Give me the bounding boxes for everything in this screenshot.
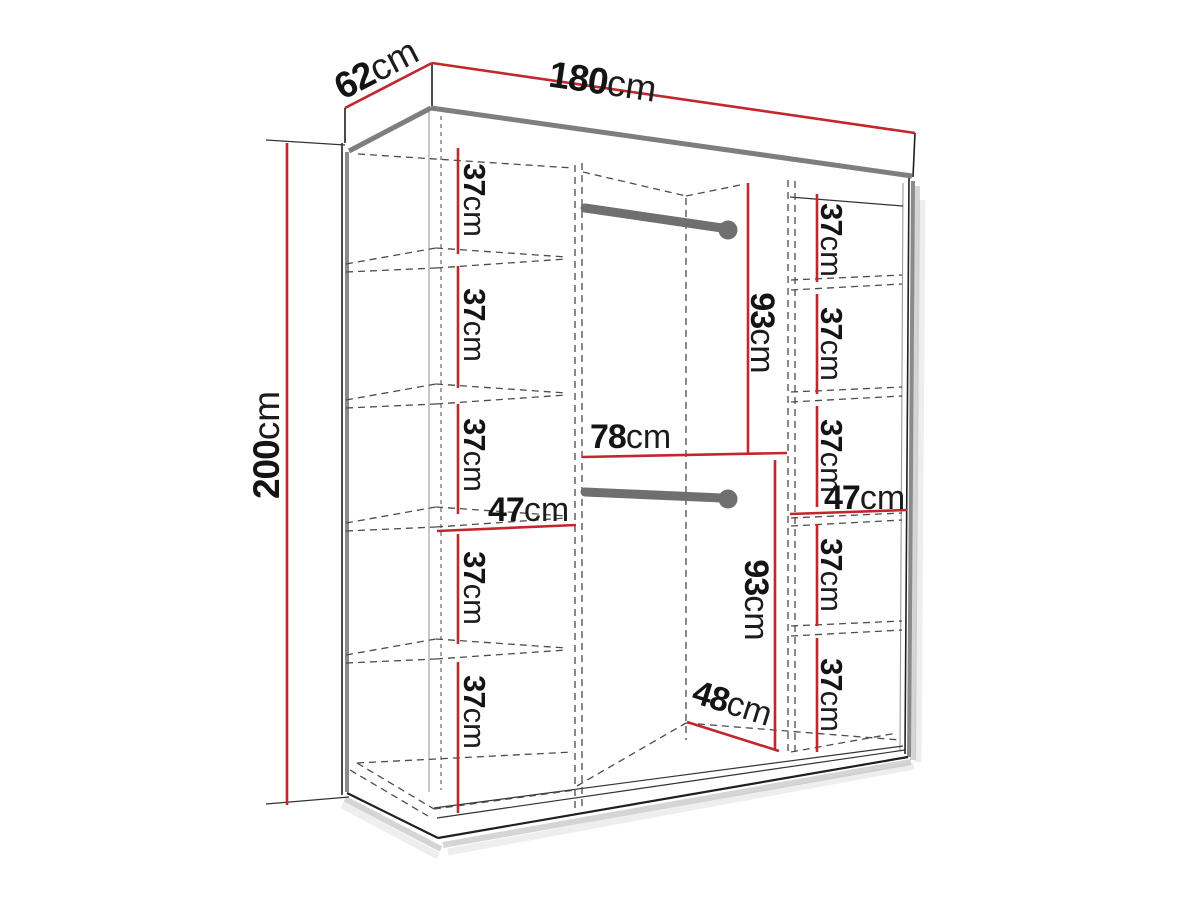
depth-label: 62cm [328, 30, 425, 107]
lower-rail-end-knob [719, 490, 738, 509]
floor-front-left [434, 790, 575, 809]
left-column-shelves [346, 248, 566, 663]
right-section-label-1: 37cm [814, 203, 849, 277]
height-extension-top [266, 140, 345, 145]
upper-rail-end-knob [719, 221, 738, 240]
right-shelf-1 [791, 275, 902, 290]
left-section-label-4: 37cm [457, 551, 492, 625]
width-dimension-line [432, 63, 915, 133]
top-depth-edge [349, 108, 431, 151]
right-shelf-2 [791, 387, 902, 402]
left-shelf-2 [346, 384, 566, 408]
top-front-edge [431, 108, 912, 176]
lower-hanging-height-label: 93cm [737, 559, 775, 640]
right-section-label-5: 37cm [814, 658, 849, 732]
upper-hanging-height-label: 93cm [743, 292, 781, 373]
floor-back-left [357, 752, 573, 763]
left-section-label-5: 37cm [457, 675, 492, 749]
middle-ceiling-left [583, 172, 686, 196]
left-shelf-4 [346, 639, 566, 663]
shadow-bottom-soft [448, 766, 914, 852]
right-section-label-2: 37cm [814, 307, 849, 381]
top-right-corner-edge [913, 133, 915, 177]
right-section-label-4: 37cm [814, 538, 849, 612]
middle-width-label: 78cm [590, 418, 671, 456]
shadow-bottom-left [345, 799, 441, 849]
shadow-bottom [443, 762, 911, 845]
middle-ceiling-right [686, 184, 745, 196]
hanging-rails [585, 208, 738, 509]
lower-hanging-rail [585, 492, 722, 498]
left-section-label-3: 37cm [457, 418, 492, 492]
left-shelf-1 [346, 248, 566, 272]
left-section-label-1: 37cm [457, 163, 492, 237]
right-wall-inner-line [900, 183, 903, 750]
height-label: 200cm [246, 391, 287, 499]
shadow-right-soft [918, 200, 922, 762]
bottom-front-edge [438, 757, 908, 838]
width-label: 180cm [546, 54, 659, 110]
right-shelf-width-label: 47cm [824, 479, 905, 517]
left-shelf-width-label: 47cm [488, 491, 569, 529]
height-extension-bottom [266, 797, 349, 804]
upper-hanging-rail [585, 208, 722, 228]
wardrobe-diagram: 62cm 180cm 200cm 37cm 37cm 37cm 37cm 37c… [0, 0, 1200, 900]
wardrobe-dimension-diagram-page: 62cm 180cm 200cm 37cm 37cm 37cm 37cm 37c… [0, 0, 1200, 900]
left-section-label-2: 37cm [457, 288, 492, 362]
floor-left-diagonal-a [357, 763, 434, 809]
right-shelf-4 [791, 621, 902, 636]
